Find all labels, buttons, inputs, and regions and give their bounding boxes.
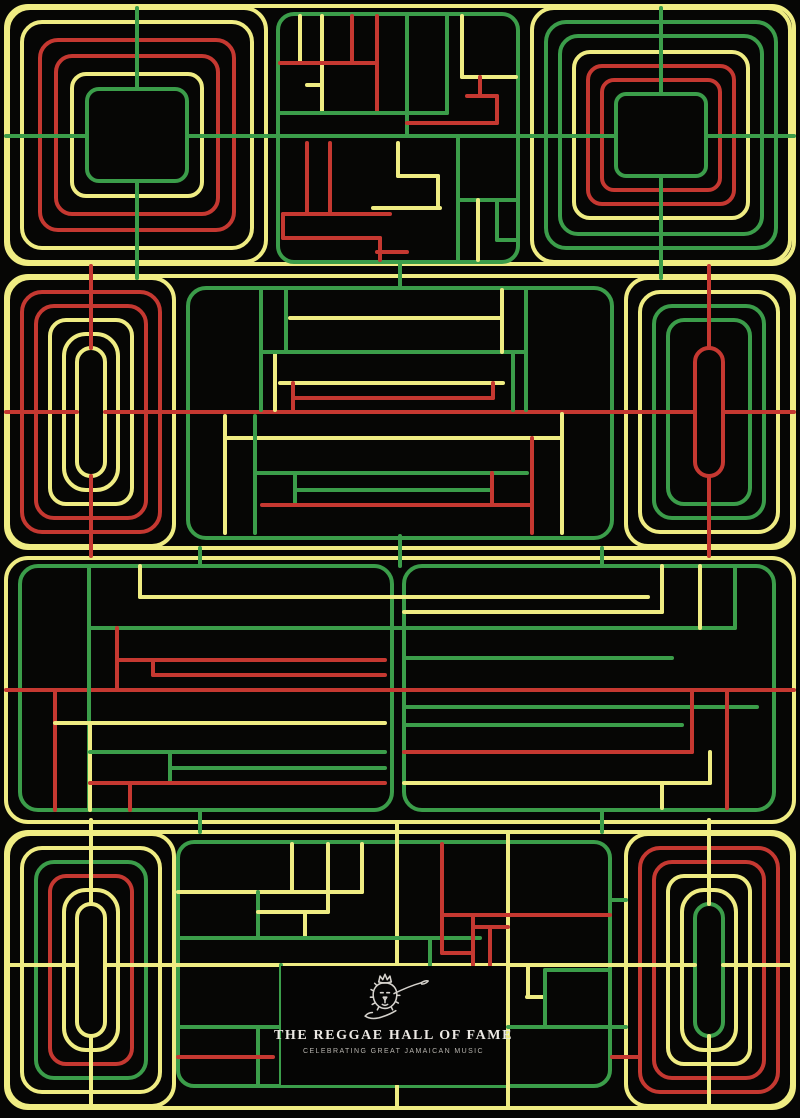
p6-ring — [682, 890, 736, 1050]
logo-box: THE REGGAE HALL OF FAME CELEBRATING GREA… — [281, 966, 506, 1085]
p1-ring — [87, 89, 187, 181]
lion-crest-icon — [348, 972, 440, 1026]
poster-subtitle: CELEBRATING GREAT JAMAICAN MUSIC — [303, 1048, 484, 1055]
reggae-hall-of-fame-poster: THE REGGAE HALL OF FAME CELEBRATING GREA… — [0, 0, 800, 1118]
p4-pill — [695, 348, 723, 476]
p5-pill — [77, 904, 105, 1036]
poster-line-art — [0, 0, 800, 1118]
p6-pill — [695, 904, 723, 1036]
p2-ring — [616, 94, 706, 176]
p3-pill — [77, 348, 105, 476]
poster-title: THE REGGAE HALL OF FAME — [274, 1028, 513, 1044]
p5-ring — [64, 890, 118, 1050]
